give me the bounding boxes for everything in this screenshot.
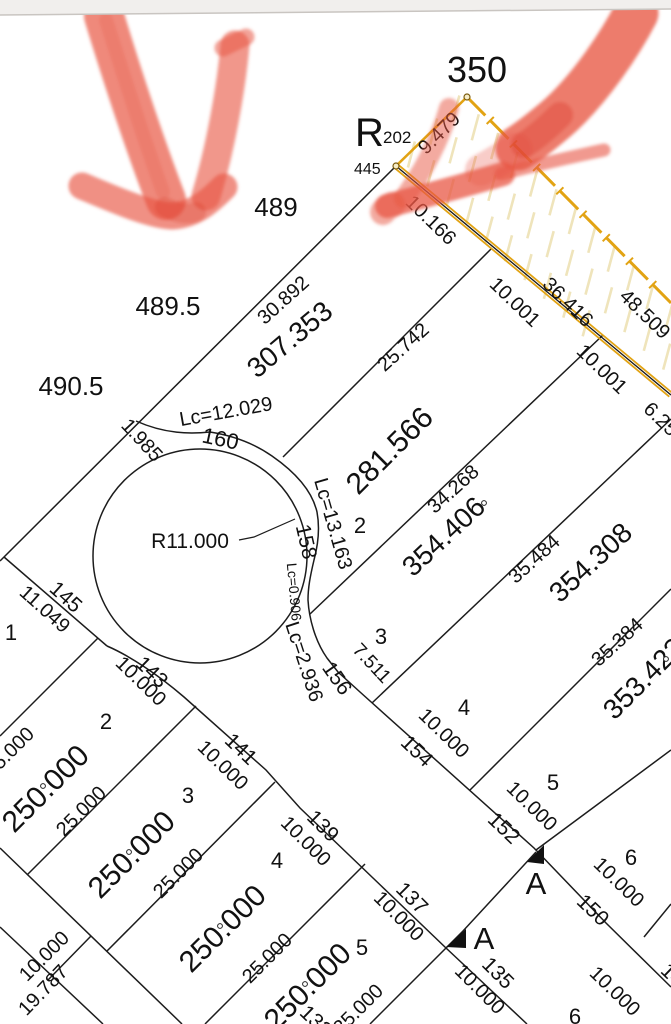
svg-text:489: 489 [254, 192, 297, 222]
svg-text:3: 3 [375, 624, 387, 649]
svg-text:A: A [474, 921, 495, 956]
svg-text:6: 6 [625, 845, 637, 870]
svg-text:202: 202 [383, 128, 411, 147]
svg-text:2: 2 [354, 513, 366, 538]
svg-text:4: 4 [458, 695, 470, 720]
svg-text:1: 1 [5, 620, 17, 645]
svg-text:R11.000: R11.000 [151, 530, 229, 553]
svg-text:5: 5 [547, 770, 559, 795]
svg-text:4: 4 [271, 848, 283, 873]
svg-text:2: 2 [100, 709, 112, 734]
svg-text:490.5: 490.5 [38, 371, 103, 401]
svg-text:6: 6 [569, 1004, 581, 1024]
svg-text:3: 3 [182, 783, 194, 808]
svg-text:5: 5 [356, 935, 368, 960]
svg-text:A: A [526, 866, 547, 901]
svg-text:350: 350 [447, 49, 507, 90]
svg-text:R: R [355, 111, 384, 155]
svg-text:489.5: 489.5 [135, 291, 200, 321]
svg-text:445: 445 [354, 161, 381, 178]
